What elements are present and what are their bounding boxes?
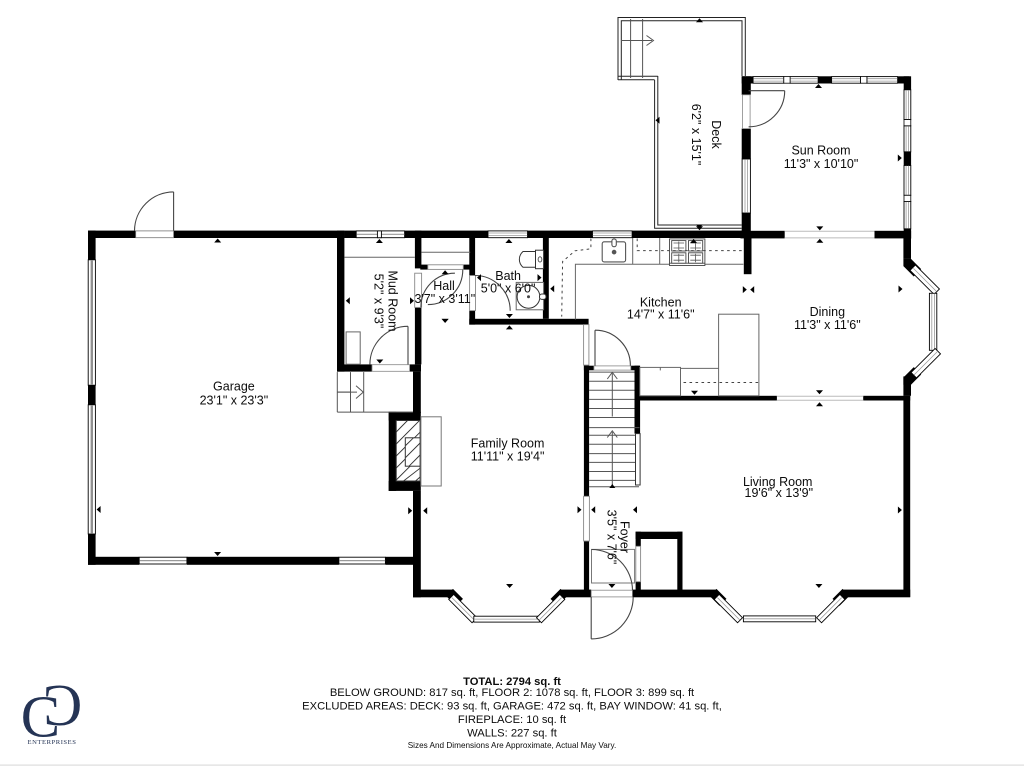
svg-text:Sizes And Dimensions Are Appro: Sizes And Dimensions Are Approximate, Ac… [408, 741, 617, 750]
svg-text:Sun Room: Sun Room [791, 144, 850, 158]
svg-text:BELOW GROUND: 817 sq. ft, FLOO: BELOW GROUND: 817 sq. ft, FLOOR 2: 1078 … [330, 687, 695, 699]
svg-text:Mud Room: Mud Room [386, 270, 400, 331]
svg-text:C: C [43, 673, 82, 739]
svg-text:5'0" x 6'0": 5'0" x 6'0" [481, 281, 536, 295]
svg-text:19'6" x 13'9": 19'6" x 13'9" [745, 486, 814, 500]
svg-text:23'1" x 23'3": 23'1" x 23'3" [200, 394, 269, 408]
svg-text:EXCLUDED AREAS: DECK: 93 sq. f: EXCLUDED AREAS: DECK: 93 sq. ft, GARAGE:… [302, 700, 722, 712]
svg-text:Hall: Hall [433, 279, 455, 293]
svg-text:11'3" x 11'6": 11'3" x 11'6" [794, 318, 861, 332]
svg-text:Garage: Garage [213, 380, 255, 394]
svg-text:Deck: Deck [709, 120, 723, 149]
svg-text:3'7" x 3'11": 3'7" x 3'11" [414, 292, 475, 306]
svg-text:Foyer: Foyer [617, 521, 631, 553]
svg-text:ENTERPRISES: ENTERPRISES [28, 739, 77, 746]
svg-text:6'2" x 15'1": 6'2" x 15'1" [689, 104, 703, 166]
svg-text:3'5" x 7'6": 3'5" x 7'6" [604, 510, 618, 565]
svg-text:5'2" x 9'3": 5'2" x 9'3" [372, 274, 386, 329]
svg-text:WALLS: 227 sq. ft: WALLS: 227 sq. ft [467, 727, 558, 739]
svg-text:11'3" x 10'10": 11'3" x 10'10" [784, 157, 859, 171]
svg-text:11'11" x 19'4": 11'11" x 19'4" [471, 450, 545, 464]
svg-text:FIREPLACE: 10 sq. ft: FIREPLACE: 10 sq. ft [458, 714, 567, 726]
svg-text:14'7" x 11'6": 14'7" x 11'6" [627, 307, 695, 321]
svg-text:Dining: Dining [810, 305, 845, 319]
